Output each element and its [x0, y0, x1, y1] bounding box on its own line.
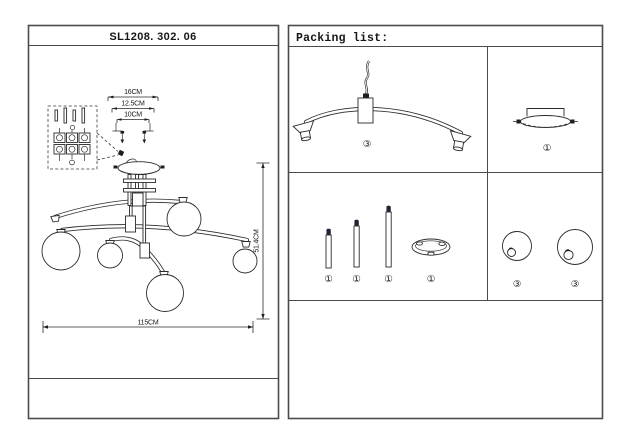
down-rod [143, 206, 146, 244]
down-rod-long [386, 206, 391, 267]
glass-globe-small [503, 232, 532, 261]
lamp-socket [242, 242, 250, 248]
glass-globe-small [98, 243, 123, 268]
canopy-disc [521, 116, 571, 128]
packing-panel-border [289, 26, 603, 419]
packing-list-title: Packing list: [296, 32, 388, 45]
down-rod-short [326, 229, 331, 268]
arm-assembly-qty: ③ [363, 139, 372, 150]
dim-label-10cm: 10CM [124, 112, 142, 119]
packing-list-panel: Packing list: [289, 26, 603, 419]
rod-long-qty: ① [384, 274, 393, 285]
mounting-ring [412, 239, 450, 255]
hub-block-mid [126, 216, 136, 232]
down-rod [130, 206, 133, 217]
hub-block-top [133, 193, 144, 206]
center-hub [358, 98, 373, 123]
height-dim-label: 51.4CM [254, 229, 261, 253]
instruction-sheet: SL1208. 302. 06 16CM 12.5CM 10CM [0, 0, 630, 445]
side-screw [571, 120, 575, 124]
canopy-qty: ① [543, 143, 552, 154]
spec-panel-border [29, 26, 279, 419]
side-screw [517, 120, 521, 124]
rod-short-qty: ① [324, 274, 333, 285]
bolt-head [121, 131, 125, 134]
hub-block-low [140, 243, 150, 258]
lamp-socket [51, 215, 60, 222]
width-dim-label: 115CM [137, 320, 158, 327]
bolt-head [143, 131, 147, 134]
technical-drawing-canvas: SL1208. 302. 06 16CM 12.5CM 10CM [0, 0, 630, 445]
dim-label-16cm: 16CM [124, 89, 142, 96]
glass-globe-large [147, 275, 184, 312]
rod-medium-qty: ① [352, 274, 361, 285]
down-rod-medium [354, 220, 359, 267]
model-number: SL1208. 302. 06 [109, 31, 196, 43]
spec-panel: SL1208. 302. 06 [29, 26, 279, 419]
canopy-screw-right [161, 166, 165, 169]
glass-globe-large [42, 232, 80, 270]
dim-label-12-5cm: 12.5CM [121, 101, 145, 108]
ring-qty: ① [427, 274, 436, 285]
glass-globe-large [167, 202, 201, 236]
globe-small-qty: ③ [513, 279, 522, 290]
crossbar [124, 179, 156, 183]
globe-large-qty: ③ [571, 279, 580, 290]
crossbar [124, 189, 156, 193]
canopy-screw-left [114, 166, 118, 169]
glass-globe-large [558, 230, 593, 265]
